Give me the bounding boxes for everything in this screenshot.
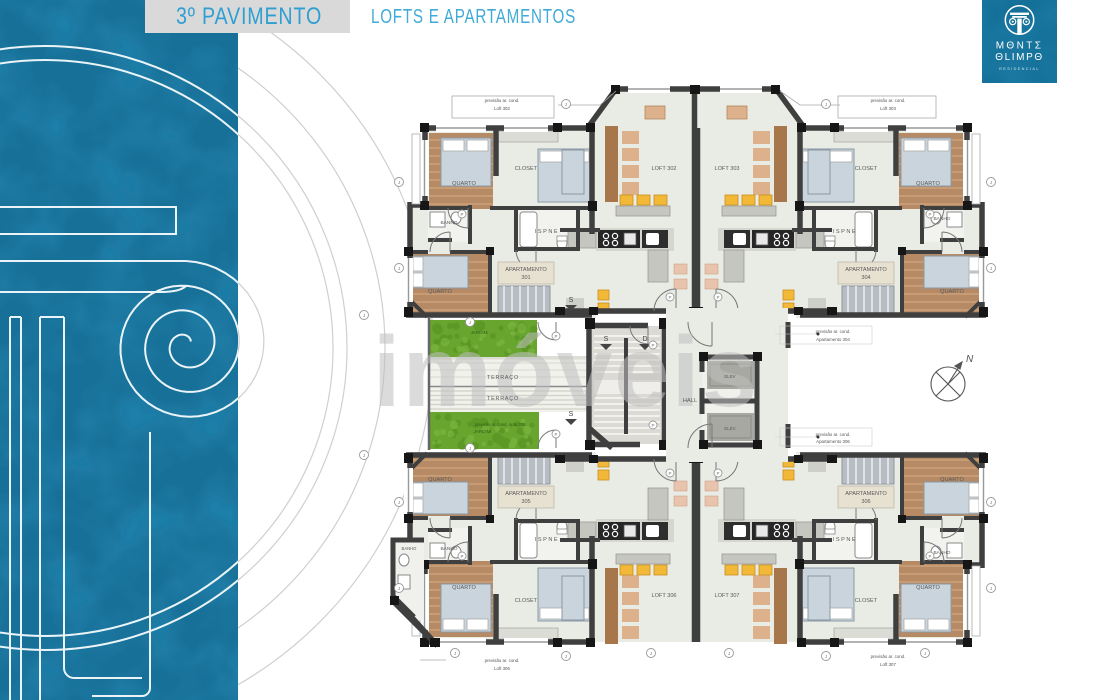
svg-text:JARDIM: JARDIM bbox=[473, 429, 490, 434]
svg-text:ISPNE: ISPNE bbox=[833, 229, 857, 235]
svg-text:previsão ar. cond.: previsão ar. cond. bbox=[816, 329, 851, 334]
svg-text:previsão ar. cond.: previsão ar. cond. bbox=[816, 432, 851, 437]
svg-text:QUARTO: QUARTO bbox=[452, 585, 476, 591]
svg-text:ELEV: ELEV bbox=[724, 374, 735, 379]
svg-text:P: P bbox=[716, 471, 719, 476]
svg-text:304: 304 bbox=[861, 275, 870, 281]
svg-text:J: J bbox=[990, 586, 992, 591]
svg-text:previsão ar. cond. Apto 305: previsão ar. cond. Apto 305 bbox=[475, 422, 526, 427]
svg-text:TERRAÇO: TERRAÇO bbox=[487, 396, 519, 402]
svg-text:BANHO: BANHO bbox=[440, 546, 457, 552]
svg-text:ELEV: ELEV bbox=[724, 426, 735, 431]
svg-text:previsão ar. cond.: previsão ar. cond. bbox=[871, 654, 906, 659]
svg-text:Loft 306: Loft 306 bbox=[494, 666, 510, 671]
svg-text:Loft 307: Loft 307 bbox=[880, 662, 896, 667]
svg-text:Apartamento 306: Apartamento 306 bbox=[816, 439, 850, 444]
svg-text:J: J bbox=[990, 500, 992, 505]
svg-text:P: P bbox=[668, 295, 671, 300]
svg-text:QUARTO: QUARTO bbox=[940, 477, 964, 483]
svg-text:J: J bbox=[469, 320, 471, 325]
svg-text:LOFT 306: LOFT 306 bbox=[651, 593, 676, 599]
svg-text:P: P bbox=[554, 334, 557, 339]
svg-text:APARTAMENTO: APARTAMENTO bbox=[845, 267, 887, 273]
svg-text:HALL: HALL bbox=[683, 398, 698, 404]
svg-text:QUARTO: QUARTO bbox=[428, 477, 452, 483]
svg-text:previsão ar. cond.: previsão ar. cond. bbox=[485, 658, 520, 663]
svg-text:CLOSET: CLOSET bbox=[855, 598, 878, 604]
svg-text:J: J bbox=[398, 180, 400, 185]
svg-text:LOFT 302: LOFT 302 bbox=[651, 166, 676, 172]
svg-text:CLOSET: CLOSET bbox=[855, 166, 878, 172]
svg-text:LOFT 307: LOFT 307 bbox=[714, 593, 739, 599]
svg-text:P: P bbox=[651, 343, 654, 348]
svg-text:P: P bbox=[928, 212, 931, 217]
svg-text:J: J bbox=[398, 266, 400, 271]
svg-text:RESIDENCIAL: RESIDENCIAL bbox=[999, 67, 1040, 71]
svg-text:QUARTO: QUARTO bbox=[452, 181, 476, 187]
svg-text:J: J bbox=[650, 651, 652, 656]
svg-text:J: J bbox=[363, 453, 365, 458]
svg-text:J: J bbox=[990, 180, 992, 185]
svg-text:J: J bbox=[469, 446, 471, 451]
svg-text:P: P bbox=[928, 554, 931, 559]
svg-text:P: P bbox=[460, 212, 463, 217]
svg-text:P: P bbox=[460, 554, 463, 559]
svg-text:J: J bbox=[454, 651, 456, 656]
svg-text:P: P bbox=[554, 432, 557, 437]
svg-text:TERRAÇO: TERRAÇO bbox=[487, 375, 519, 381]
svg-text:ISPNE: ISPNE bbox=[535, 229, 559, 235]
svg-text:MΘNTΣ: MΘNTΣ bbox=[996, 41, 1044, 52]
svg-text:J: J bbox=[398, 586, 400, 591]
svg-text:QUARTO: QUARTO bbox=[916, 585, 940, 591]
svg-text:previsão ar. cond.: previsão ar. cond. bbox=[485, 98, 520, 103]
svg-text:CLOSET: CLOSET bbox=[515, 166, 538, 172]
svg-text:ISPNE: ISPNE bbox=[833, 537, 857, 543]
svg-text:J: J bbox=[565, 102, 567, 107]
svg-text:BANHO: BANHO bbox=[933, 216, 950, 222]
svg-text:previsão ar. cond.: previsão ar. cond. bbox=[871, 98, 906, 103]
svg-text:P: P bbox=[651, 423, 654, 428]
svg-text:QUARTO: QUARTO bbox=[916, 181, 940, 187]
svg-text:J: J bbox=[728, 651, 730, 656]
svg-text:ΘLIMPΘ: ΘLIMPΘ bbox=[995, 52, 1044, 63]
svg-text:J: J bbox=[825, 102, 827, 107]
svg-text:LOFT 303: LOFT 303 bbox=[714, 166, 739, 172]
svg-text:N: N bbox=[966, 354, 974, 365]
svg-text:QUARTO: QUARTO bbox=[428, 289, 452, 295]
svg-text:Apartamento 304: Apartamento 304 bbox=[816, 337, 850, 342]
svg-text:APARTAMENTO: APARTAMENTO bbox=[505, 491, 547, 497]
svg-text:J: J bbox=[825, 654, 827, 659]
svg-text:J: J bbox=[398, 500, 400, 505]
svg-text:306: 306 bbox=[861, 499, 870, 505]
svg-text:301: 301 bbox=[521, 275, 530, 281]
svg-text:CLOSET: CLOSET bbox=[515, 598, 538, 604]
svg-text:Loft 302: Loft 302 bbox=[494, 106, 510, 111]
svg-text:Loft 303: Loft 303 bbox=[880, 106, 896, 111]
svg-text:JARDIM: JARDIM bbox=[470, 330, 487, 335]
svg-text:S: S bbox=[569, 297, 574, 304]
svg-text:J: J bbox=[565, 654, 567, 659]
svg-text:J: J bbox=[990, 266, 992, 271]
svg-text:imóveis: imóveis bbox=[373, 316, 759, 428]
svg-text:BANHO: BANHO bbox=[402, 546, 418, 551]
svg-text:P: P bbox=[668, 471, 671, 476]
svg-text:305: 305 bbox=[521, 499, 530, 505]
svg-text:BANHO: BANHO bbox=[440, 220, 457, 226]
svg-text:J: J bbox=[363, 313, 365, 318]
svg-text:APARTAMENTO: APARTAMENTO bbox=[845, 491, 887, 497]
svg-text:APARTAMENTO: APARTAMENTO bbox=[505, 267, 547, 273]
svg-text:ISPNE: ISPNE bbox=[535, 537, 559, 543]
svg-text:BANHO: BANHO bbox=[933, 550, 950, 556]
svg-text:QUARTO: QUARTO bbox=[940, 289, 964, 295]
svg-text:P: P bbox=[716, 295, 719, 300]
svg-text:J: J bbox=[924, 651, 926, 656]
